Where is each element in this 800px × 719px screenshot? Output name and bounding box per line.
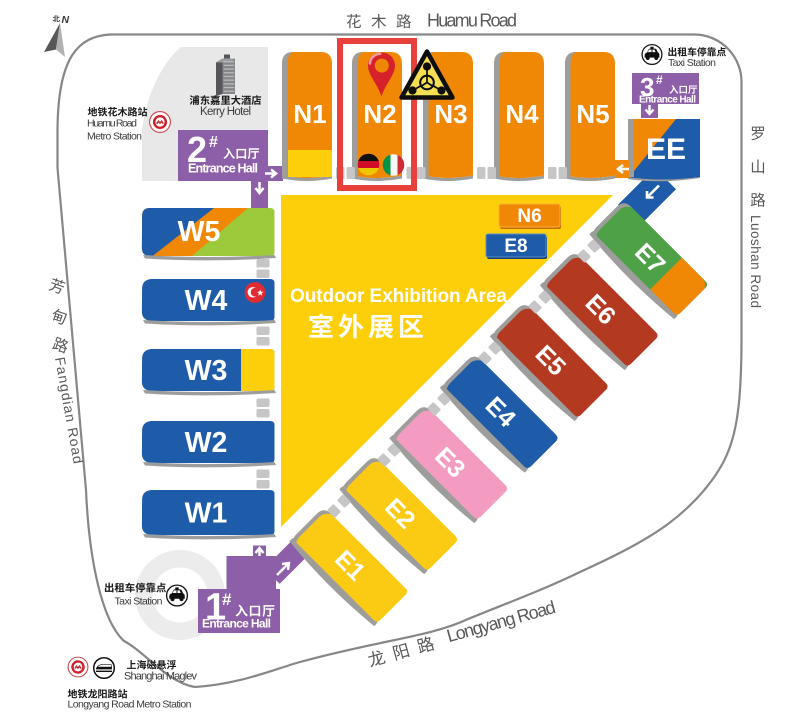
svg-text:Luoshan Road: Luoshan Road (748, 215, 763, 308)
svg-text:Outdoor Exhibition Area: Outdoor Exhibition Area (290, 286, 507, 307)
svg-text:Entrance Hall: Entrance Hall (202, 617, 271, 631)
svg-text:W1: W1 (185, 498, 228, 530)
svg-text:EE: EE (646, 133, 686, 166)
svg-text:Taxi Station: Taxi Station (115, 596, 163, 608)
svg-text:#: # (656, 73, 663, 87)
svg-text:N3: N3 (434, 99, 467, 129)
svg-text:W2: W2 (185, 427, 228, 459)
svg-text:N2: N2 (363, 99, 396, 129)
svg-text:N5: N5 (576, 99, 609, 129)
svg-text:Huamu Road: Huamu Road (87, 118, 137, 130)
svg-text:E8: E8 (504, 236, 527, 257)
svg-text:Shanghai Maglev: Shanghai Maglev (124, 671, 198, 683)
svg-text:N: N (62, 14, 70, 26)
svg-text:N1: N1 (293, 99, 326, 129)
svg-text:Huamu Road: Huamu Road (427, 11, 517, 31)
svg-text:Entrance Hall: Entrance Hall (639, 95, 696, 106)
svg-text:#: # (209, 134, 218, 151)
svg-text:Longyang Road Metro Station: Longyang Road Metro Station (68, 699, 192, 711)
svg-text:N4: N4 (505, 99, 539, 129)
svg-text:W3: W3 (185, 355, 228, 387)
svg-text:#: # (222, 590, 232, 609)
svg-text:Metro Station: Metro Station (87, 131, 142, 143)
svg-text:Entrance Hall: Entrance Hall (188, 162, 258, 176)
svg-text:Kerry Hotel: Kerry Hotel (200, 106, 251, 118)
svg-text:W4: W4 (185, 285, 228, 317)
svg-text:N6: N6 (517, 206, 541, 227)
svg-text:W5: W5 (178, 216, 221, 248)
svg-text:Taxi Station: Taxi Station (668, 57, 716, 69)
